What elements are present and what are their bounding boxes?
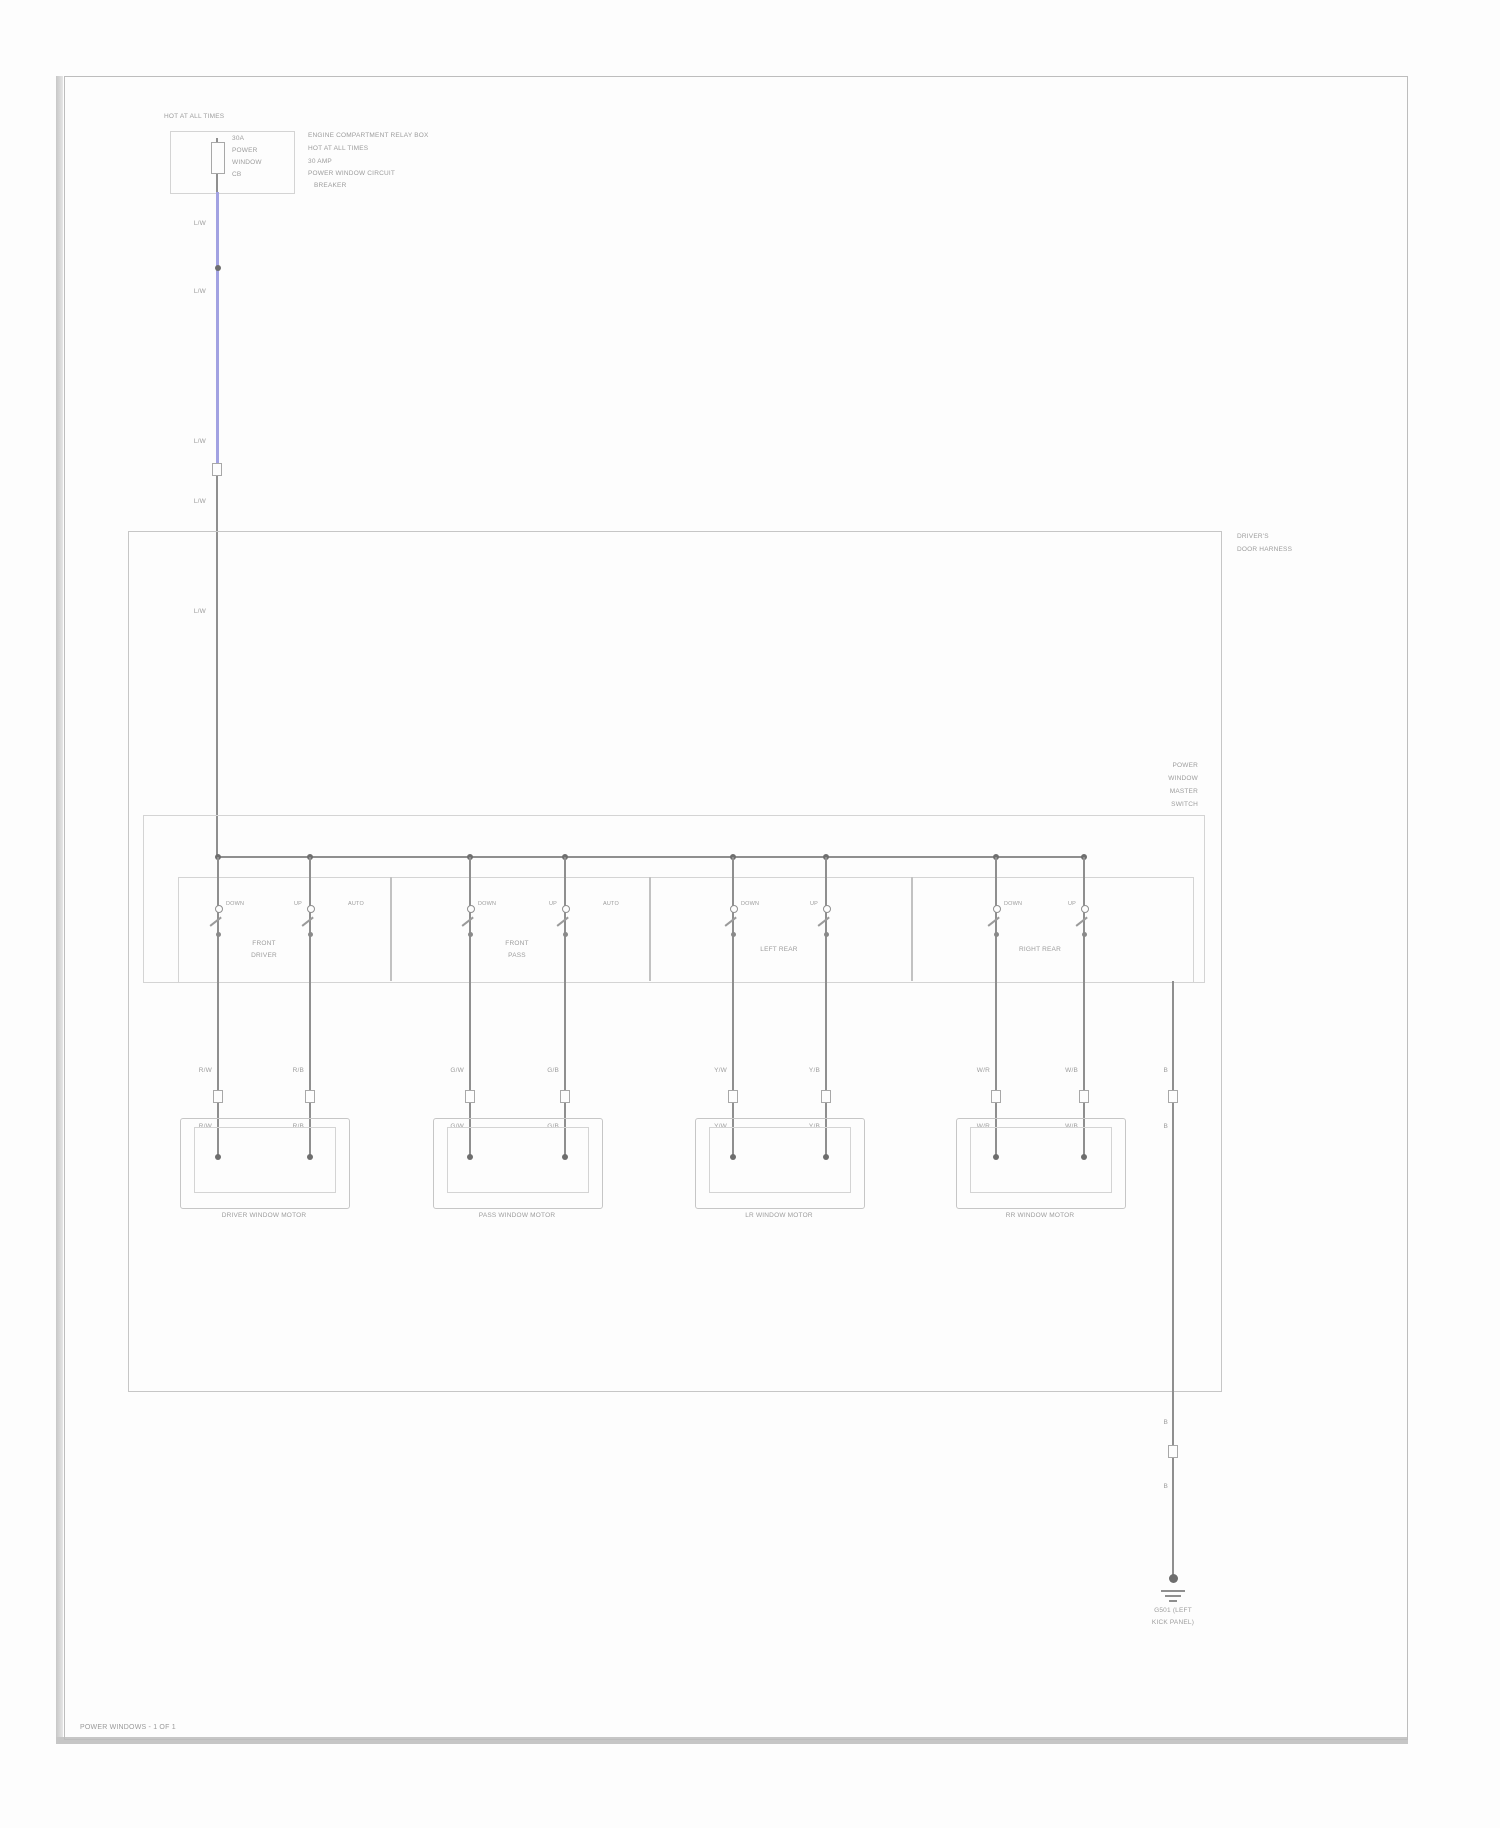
cell-divider bbox=[911, 877, 913, 981]
motor-terminal-dot bbox=[1081, 1154, 1087, 1160]
feed-wire-blue-segment bbox=[216, 192, 219, 472]
contact-terminal-dot bbox=[994, 932, 999, 937]
inline-connector-icon bbox=[1168, 1445, 1178, 1458]
fuse-name-line2: WINDOW bbox=[232, 160, 262, 167]
cell-label-line1: FRONT bbox=[214, 941, 314, 948]
cell-divider bbox=[390, 877, 392, 981]
contact-terminal-dot bbox=[216, 932, 221, 937]
switch-contact-icon bbox=[993, 905, 1001, 913]
door-box-label-line2: DOOR HARNESS bbox=[1237, 547, 1292, 554]
motor-box-inner bbox=[194, 1127, 336, 1193]
contact-terminal-dot bbox=[308, 932, 313, 937]
inline-connector-icon bbox=[213, 1090, 223, 1103]
motor-terminal-dot bbox=[467, 1154, 473, 1160]
wire-color-label: G/W bbox=[430, 1068, 464, 1075]
switch-contact-icon bbox=[307, 905, 315, 913]
contact-label: AUTO bbox=[348, 902, 364, 908]
contact-label: UP bbox=[272, 902, 302, 908]
motor-terminal-dot bbox=[562, 1154, 568, 1160]
wire-color-label: B bbox=[1134, 1124, 1168, 1131]
ground-wire bbox=[1172, 981, 1174, 1578]
cell-label-line1: FRONT bbox=[467, 941, 567, 948]
contact-terminal-dot bbox=[824, 932, 829, 937]
contact-label: AUTO bbox=[603, 902, 619, 908]
fuse-note-line: 30 AMP bbox=[308, 159, 332, 166]
contact-label: DOWN bbox=[741, 902, 759, 908]
switch-row-box bbox=[178, 877, 1194, 983]
contact-label: UP bbox=[1046, 902, 1076, 908]
motor-box-inner bbox=[970, 1127, 1112, 1193]
wire-color-label: L/W bbox=[170, 499, 206, 506]
wire-color-label: L/W bbox=[170, 289, 206, 296]
fuse-note-line: ENGINE COMPARTMENT RELAY BOX bbox=[308, 133, 429, 140]
ground-id-line2: KICK PANEL) bbox=[1123, 1620, 1223, 1627]
cell-label-line1: RIGHT REAR bbox=[990, 947, 1090, 954]
inline-connector-icon bbox=[991, 1090, 1001, 1103]
motor-box-inner bbox=[709, 1127, 851, 1193]
motor-terminal-dot bbox=[823, 1154, 829, 1160]
wire-color-label: G/B bbox=[525, 1068, 559, 1075]
wire-color-label: L/W bbox=[170, 439, 206, 446]
junction-dot bbox=[215, 265, 221, 271]
inline-connector-icon bbox=[212, 463, 222, 476]
inline-connector-icon bbox=[560, 1090, 570, 1103]
motor-label: RR WINDOW MOTOR bbox=[956, 1213, 1124, 1220]
contact-terminal-dot bbox=[563, 932, 568, 937]
fuse-rating: 30A bbox=[232, 136, 244, 143]
wire-color-label: W/B bbox=[1044, 1068, 1078, 1075]
wire-color-label: B bbox=[1134, 1420, 1168, 1427]
contact-label: UP bbox=[788, 902, 818, 908]
diagram-layer: HOT AT ALL TIMES 30A POWER WINDOW CB ENG… bbox=[0, 0, 1500, 1828]
drop-wire bbox=[309, 857, 311, 1157]
drop-wire bbox=[825, 857, 827, 1157]
wire-color-label: Y/W bbox=[693, 1068, 727, 1075]
switch-contact-icon bbox=[562, 905, 570, 913]
motor-terminal-dot bbox=[215, 1154, 221, 1160]
cell-label-line1: LEFT REAR bbox=[729, 947, 829, 954]
switch-contact-icon bbox=[730, 905, 738, 913]
contact-label: DOWN bbox=[1004, 902, 1022, 908]
fuse-note-line: HOT AT ALL TIMES bbox=[308, 146, 368, 153]
cell-label-line2: PASS bbox=[467, 953, 567, 960]
wire-color-label: B bbox=[1134, 1484, 1168, 1491]
motor-terminal-dot bbox=[993, 1154, 999, 1160]
contact-terminal-dot bbox=[468, 932, 473, 937]
master-switch-label-line: SWITCH bbox=[1138, 802, 1198, 809]
drop-wire bbox=[564, 857, 566, 1157]
motor-terminal-dot bbox=[307, 1154, 313, 1160]
inline-connector-icon bbox=[1079, 1090, 1089, 1103]
switch-contact-icon bbox=[823, 905, 831, 913]
fuse-icon bbox=[211, 142, 225, 174]
drop-wire bbox=[995, 857, 997, 1157]
ground-symbol-icon bbox=[1169, 1600, 1177, 1602]
scanned-wiring-diagram-page: HOT AT ALL TIMES 30A POWER WINDOW CB ENG… bbox=[0, 0, 1500, 1828]
ground-symbol-icon bbox=[1161, 1590, 1185, 1592]
wire-color-label: R/W bbox=[178, 1068, 212, 1075]
fuse-note-line: BREAKER bbox=[314, 183, 346, 190]
master-switch-label-line: POWER bbox=[1138, 763, 1198, 770]
cell-label-line2: DRIVER bbox=[214, 953, 314, 960]
inline-connector-icon bbox=[821, 1090, 831, 1103]
motor-label: DRIVER WINDOW MOTOR bbox=[180, 1213, 348, 1220]
master-switch-label-line: WINDOW bbox=[1138, 776, 1198, 783]
inline-connector-icon bbox=[305, 1090, 315, 1103]
bus-line bbox=[217, 856, 1085, 858]
wire-color-label: L/W bbox=[170, 221, 206, 228]
inline-connector-icon bbox=[728, 1090, 738, 1103]
drop-wire bbox=[732, 857, 734, 1157]
drop-wire bbox=[1083, 857, 1085, 1157]
drop-wire bbox=[469, 857, 471, 1157]
motor-label: LR WINDOW MOTOR bbox=[695, 1213, 863, 1220]
motor-label: PASS WINDOW MOTOR bbox=[433, 1213, 601, 1220]
motor-box-inner bbox=[447, 1127, 589, 1193]
switch-contact-icon bbox=[467, 905, 475, 913]
ground-id-line1: G501 (LEFT bbox=[1123, 1608, 1223, 1615]
page-caption: POWER WINDOWS - 1 OF 1 bbox=[80, 1724, 176, 1731]
wire-color-label: W/R bbox=[956, 1068, 990, 1075]
inline-connector-icon bbox=[1168, 1090, 1178, 1103]
cell-divider bbox=[649, 877, 651, 981]
contact-label: DOWN bbox=[478, 902, 496, 908]
master-switch-label-line: MASTER bbox=[1138, 789, 1198, 796]
fuse-name-line1: POWER bbox=[232, 148, 258, 155]
switch-contact-icon bbox=[215, 905, 223, 913]
contact-terminal-dot bbox=[731, 932, 736, 937]
inline-connector-icon bbox=[465, 1090, 475, 1103]
fuse-note-line: POWER WINDOW CIRCUIT bbox=[308, 171, 395, 178]
ground-symbol-icon bbox=[1165, 1595, 1181, 1597]
contact-label: DOWN bbox=[226, 902, 244, 908]
wire-color-label: Y/B bbox=[786, 1068, 820, 1075]
switch-contact-icon bbox=[1081, 905, 1089, 913]
door-box-label-line1: DRIVER'S bbox=[1237, 534, 1269, 541]
contact-label: UP bbox=[527, 902, 557, 908]
fuse-name-line3: CB bbox=[232, 172, 241, 179]
drop-wire bbox=[217, 857, 219, 1157]
ground-terminal-dot bbox=[1169, 1574, 1178, 1583]
wire-color-label: B bbox=[1134, 1068, 1168, 1075]
fuse-block-header: HOT AT ALL TIMES bbox=[164, 114, 224, 121]
contact-terminal-dot bbox=[1082, 932, 1087, 937]
motor-terminal-dot bbox=[730, 1154, 736, 1160]
wire-color-label: R/B bbox=[270, 1068, 304, 1075]
